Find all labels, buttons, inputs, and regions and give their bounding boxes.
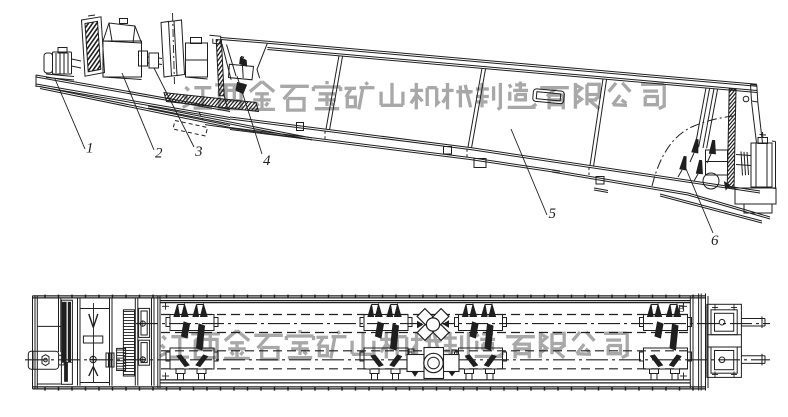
svg-text:1: 1	[86, 141, 94, 157]
svg-text:6: 6	[711, 233, 719, 249]
svg-text:5: 5	[549, 206, 557, 222]
svg-text:B: B	[678, 304, 685, 315]
svg-text:2: 2	[155, 146, 163, 162]
svg-text:3: 3	[194, 144, 203, 160]
svg-text:4: 4	[263, 153, 271, 169]
